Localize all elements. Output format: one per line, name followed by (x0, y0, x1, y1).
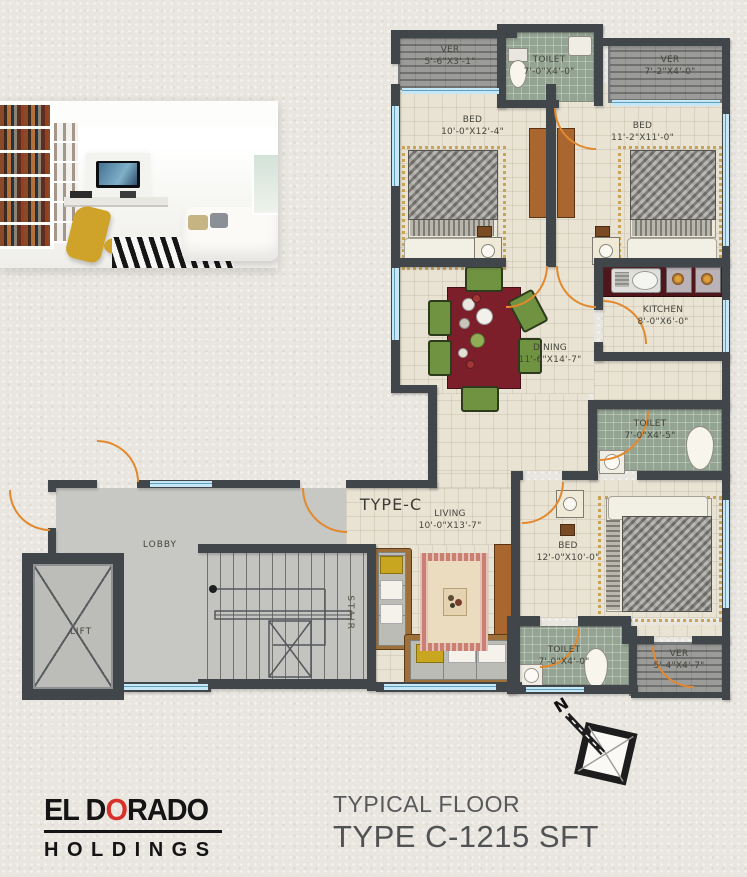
brand-accent-o: O (105, 792, 127, 827)
window (150, 481, 212, 487)
wall (391, 258, 506, 267)
window (122, 684, 208, 690)
room-name: VER (398, 44, 502, 56)
medallion-dot (448, 595, 454, 601)
wall (622, 636, 654, 644)
media-box (70, 191, 92, 198)
window (392, 106, 399, 186)
window (526, 687, 584, 692)
bed1-blanket (408, 150, 498, 220)
medallion-dot (455, 599, 462, 606)
room-name: VER (634, 648, 724, 660)
room-name: BED (580, 120, 705, 132)
sink-bowl (632, 271, 658, 290)
label-type-c: TYPE-C (348, 494, 434, 516)
rug-medallion (443, 588, 467, 616)
sofa-pillow (210, 213, 228, 228)
plan-title-line2: TYPE C-1215 SFT (333, 819, 663, 855)
room-dims: 7'-0"X4'-0" (503, 66, 595, 78)
wall (594, 82, 603, 106)
bed1-wardrobe (529, 128, 547, 218)
north-arrow: N (545, 695, 663, 800)
bed3-decor (560, 524, 575, 536)
sofa-pillow-white (380, 604, 403, 624)
room-name: TOILET (510, 644, 618, 656)
label-lobby: LOBBY (128, 539, 192, 551)
tv-glow (99, 163, 137, 185)
label-lift: LIFT (56, 626, 106, 638)
sink-basin (524, 668, 539, 683)
brand-name-pre: EL D (44, 792, 105, 827)
brand-name-post: RADO (127, 792, 208, 827)
label-kitchen: KITCHEN 8'-0"X6'-0" (606, 304, 720, 328)
hall-floor (437, 471, 511, 488)
room-dims: 8'-0"X6'-0" (606, 316, 720, 328)
label-stair: STAIR (344, 581, 356, 645)
wall (198, 679, 376, 689)
wall (367, 544, 376, 691)
wall (497, 24, 603, 32)
plate (459, 318, 470, 329)
media-box (120, 191, 136, 198)
brand-name: EL DORADO (44, 792, 221, 828)
label-dining: DINING 11'-6"X14'-7" (494, 342, 606, 366)
lobby-left-door-arc (9, 490, 50, 531)
label-veranda-bottom: VER 5'-4"X4'-7" (634, 648, 724, 672)
plate (466, 360, 475, 369)
label-toilet-top: TOILET 7'-0"X4'-0" (503, 54, 595, 78)
room-dims: 7'-2"X4'-0" (618, 66, 722, 78)
window (612, 100, 720, 106)
room-name: TOILET (594, 418, 706, 430)
wall (594, 258, 730, 267)
wall (637, 471, 730, 480)
room-dims: 10'-0"X12'-4" (410, 126, 535, 138)
sofa-pillow (188, 215, 208, 230)
bed2-foot-bench (632, 220, 712, 236)
room-dims: 11'-6"X14'-7" (494, 354, 606, 366)
room-name: BED (410, 114, 535, 126)
bed2-decor (595, 226, 610, 237)
sofa-pillow-yellow (380, 556, 403, 574)
lobby-top-door-arc (97, 440, 139, 482)
room-name: VER (618, 54, 722, 66)
stove-burner (666, 267, 692, 293)
label-toilet-bottom: TOILET 7'-0"X4'-0" (510, 644, 618, 668)
brand-logo: EL DORADO HOLDINGS (44, 792, 234, 862)
room-dims: 7'-0"X4'-5" (594, 430, 706, 442)
window (392, 268, 399, 340)
room-dims: 10'-0"X13'-7" (398, 520, 502, 532)
wall (588, 400, 730, 409)
toilet-sink (568, 36, 592, 56)
tv-screen (96, 161, 140, 188)
bed1-decor (477, 226, 492, 237)
label-veranda-top-left: VER 5'-6"X3'-1" (398, 44, 502, 68)
dining-chair (461, 386, 499, 412)
plate (458, 348, 468, 358)
room-dims: 7'-0"X4'-0" (510, 656, 618, 668)
media-shelf (64, 197, 168, 207)
kitchen-hall-floor (594, 361, 722, 400)
window (384, 684, 496, 690)
room-dims: 11'-2"X11'-0" (580, 132, 705, 144)
dining-chair (428, 340, 452, 376)
brand-rule (44, 830, 222, 833)
room-name: TOILET (503, 54, 595, 66)
window (723, 300, 729, 352)
plan-title-line1: TYPICAL FLOOR (333, 791, 663, 818)
label-bed3: BED 12'-0"X10'-0" (512, 540, 624, 564)
wall (428, 385, 437, 488)
stove-burner (695, 267, 721, 293)
photo-window (252, 153, 278, 215)
dining-chair (465, 266, 503, 292)
brand-subtitle: HOLDINGS (44, 839, 234, 862)
burner (672, 273, 684, 285)
burner (701, 273, 713, 285)
medallion-dot (450, 603, 455, 608)
interior-photo (0, 101, 278, 268)
room-dims: 5'-6"X3'-1" (398, 56, 502, 68)
label-toilet-mid: TOILET 7'-0"X4'-5" (594, 418, 706, 442)
window (723, 500, 729, 608)
label-bed1: BED 10'-0"X12'-4" (410, 114, 535, 138)
plate (470, 333, 485, 348)
wall (594, 352, 730, 361)
dining-floor-lower (437, 394, 588, 471)
room-name: KITCHEN (606, 304, 720, 316)
room-dims: 12'-0"X10'-0" (512, 552, 624, 564)
bookshelf (0, 105, 54, 249)
sofa-pillow-white (380, 580, 403, 600)
wall (346, 480, 437, 488)
wall (692, 636, 730, 644)
plan-title-block: TYPICAL FLOOR TYPE C-1215 SFT (333, 791, 663, 855)
bed2-blanket (630, 150, 716, 220)
kitchen-sink (611, 268, 661, 293)
dining-chair (428, 300, 452, 336)
wall (594, 24, 603, 82)
label-veranda-top-right: VER 7'-2"X4'-0" (618, 54, 722, 78)
window (402, 88, 499, 94)
room-name: DINING (494, 342, 606, 354)
wall (562, 471, 598, 480)
wall (602, 38, 730, 46)
wall (198, 544, 376, 553)
floorplan-page: VER 5'-6"X3'-1" TOILET 7'-0"X4'-0" VER 7… (0, 0, 747, 877)
bed3-side-bench (606, 520, 620, 610)
room-dims: 5'-4"X4'-7" (634, 660, 724, 672)
plate (476, 308, 493, 325)
label-bed2: BED 11'-2"X11'-0" (580, 120, 705, 144)
bed3-blanket (622, 516, 712, 612)
window (723, 114, 729, 246)
sink-drainer (615, 272, 629, 287)
plate (472, 294, 481, 303)
room-name: BED (512, 540, 624, 552)
